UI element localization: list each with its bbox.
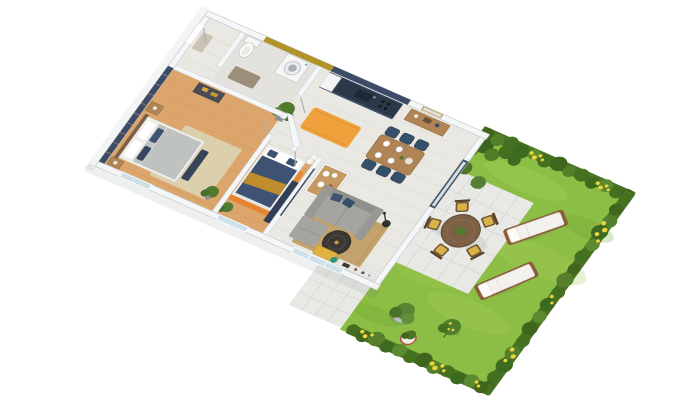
- floorplan-render: [0, 0, 700, 420]
- outdoor-chair: [454, 199, 470, 212]
- plan-rotated-group: [55, 0, 648, 403]
- floorplan-stage: [0, 0, 700, 420]
